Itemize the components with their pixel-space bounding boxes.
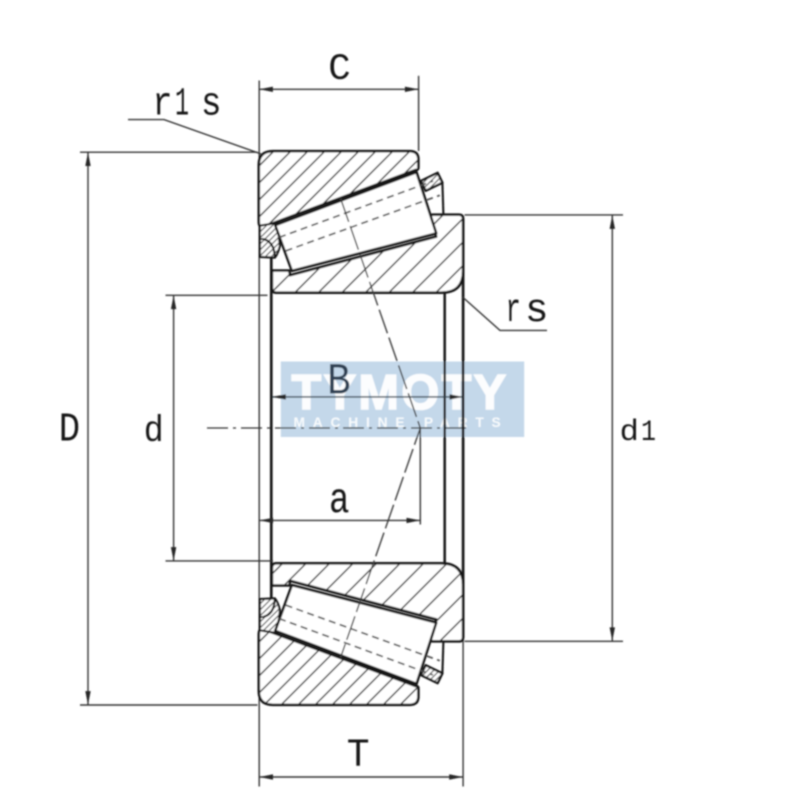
svg-text:r: r bbox=[506, 289, 521, 334]
svg-text:d: d bbox=[620, 415, 639, 449]
svg-text:1: 1 bbox=[175, 83, 189, 128]
svg-text:TYMOTY: TYMOTY bbox=[292, 365, 509, 420]
svg-text:T: T bbox=[347, 733, 370, 778]
svg-text:C: C bbox=[328, 49, 350, 91]
svg-text:s: s bbox=[525, 289, 549, 334]
svg-text:a: a bbox=[329, 476, 350, 525]
svg-text:r: r bbox=[153, 83, 173, 128]
svg-text:s: s bbox=[201, 83, 222, 128]
svg-text:d: d bbox=[144, 411, 164, 453]
svg-text:1: 1 bbox=[641, 415, 656, 449]
svg-text:B: B bbox=[327, 358, 351, 408]
svg-text:D: D bbox=[59, 408, 80, 454]
